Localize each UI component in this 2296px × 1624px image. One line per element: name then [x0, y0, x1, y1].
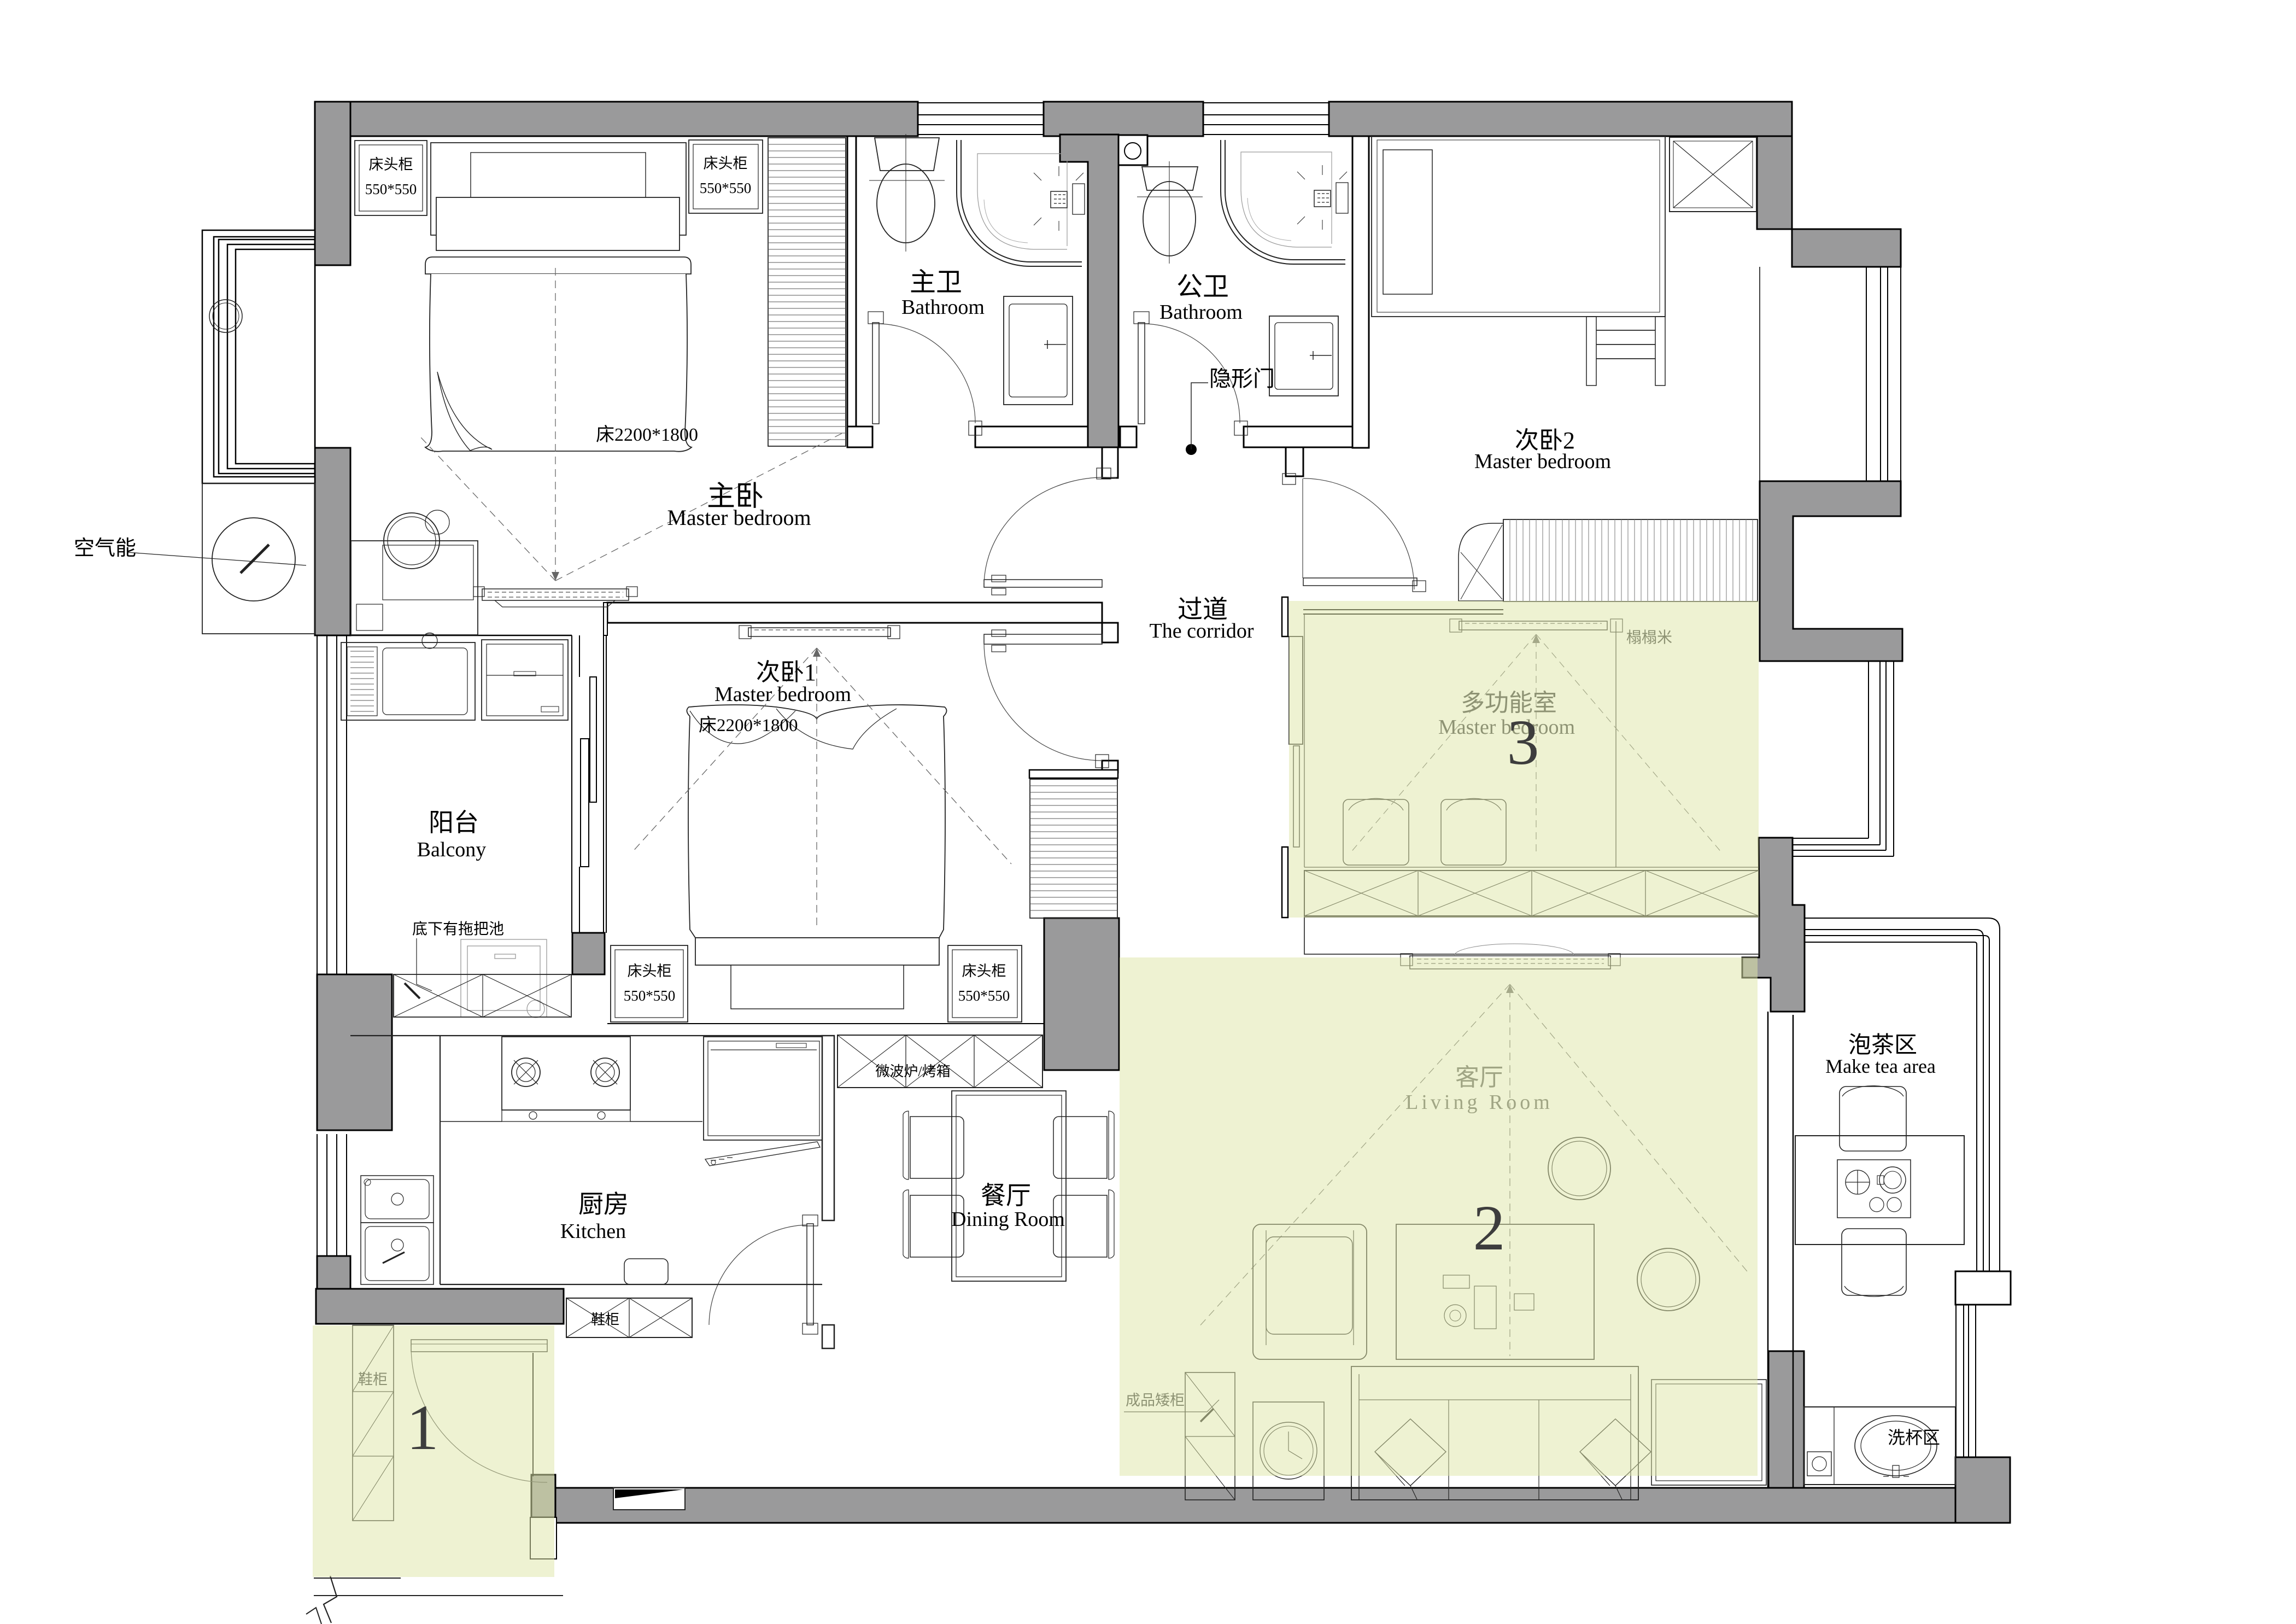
svg-text:Kitchen: Kitchen: [560, 1220, 626, 1243]
svg-text:Master bedroom: Master bedroom: [667, 505, 811, 530]
svg-text:Make tea area: Make tea area: [1825, 1055, 1936, 1077]
svg-text:Bathroom: Bathroom: [901, 296, 985, 319]
svg-text:550*550: 550*550: [624, 988, 676, 1004]
svg-text:Master bedroom: Master bedroom: [714, 683, 851, 706]
svg-text:公卫: 公卫: [1176, 272, 1229, 301]
svg-text:微波炉/烤箱: 微波炉/烤箱: [875, 1064, 950, 1079]
svg-text:成品矮柜: 成品矮柜: [1126, 1392, 1185, 1409]
svg-text:床头柜: 床头柜: [704, 155, 748, 172]
svg-text:隐形门: 隐形门: [1209, 366, 1275, 391]
svg-text:2: 2: [1473, 1192, 1506, 1264]
svg-text:泡茶区: 泡茶区: [1848, 1033, 1917, 1058]
svg-text:底下有拖把池: 底下有拖把池: [412, 920, 504, 938]
svg-text:鞋柜: 鞋柜: [358, 1371, 388, 1388]
svg-text:厨房: 厨房: [578, 1190, 629, 1218]
svg-text:床头柜: 床头柜: [962, 963, 1006, 979]
svg-text:550*550: 550*550: [365, 181, 417, 197]
svg-text:阳台: 阳台: [429, 809, 479, 837]
svg-text:Living Room: Living Room: [1405, 1091, 1553, 1114]
svg-text:550*550: 550*550: [700, 180, 752, 196]
svg-text:次卧1: 次卧1: [756, 659, 816, 686]
svg-text:1: 1: [407, 1392, 439, 1463]
svg-text:鞋柜: 鞋柜: [591, 1312, 619, 1328]
svg-text:Master bedroom: Master bedroom: [1474, 450, 1611, 473]
svg-text:餐厅: 餐厅: [981, 1182, 1031, 1210]
svg-text:3: 3: [1507, 706, 1539, 778]
svg-text:床头柜: 床头柜: [628, 963, 672, 979]
svg-text:榻榻米: 榻榻米: [1626, 629, 1672, 646]
svg-text:空气能: 空气能: [74, 537, 136, 560]
svg-text:Balcony: Balcony: [417, 838, 487, 861]
svg-text:The corridor: The corridor: [1150, 620, 1254, 642]
svg-text:主卫: 主卫: [910, 268, 962, 297]
svg-text:床2200*1800: 床2200*1800: [596, 424, 698, 445]
svg-text:床2200*1800: 床2200*1800: [699, 715, 798, 735]
svg-text:客厅: 客厅: [1455, 1064, 1503, 1091]
svg-text:Bathroom: Bathroom: [1159, 301, 1243, 324]
svg-text:Dining Room: Dining Room: [951, 1208, 1065, 1231]
svg-text:洗杯区: 洗杯区: [1888, 1428, 1940, 1447]
svg-text:550*550: 550*550: [958, 988, 1010, 1004]
svg-text:床头柜: 床头柜: [369, 156, 413, 173]
